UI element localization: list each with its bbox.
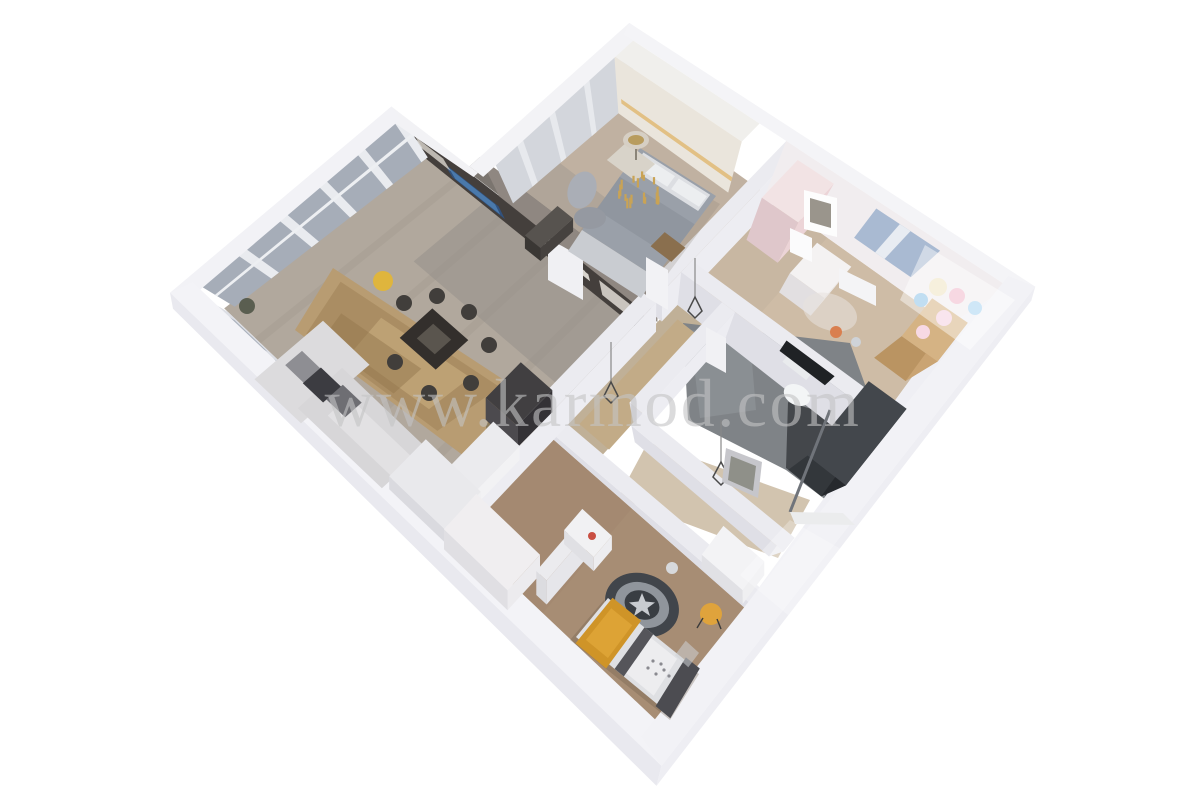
svg-text:www.karmod.com: www.karmod.com bbox=[325, 365, 862, 441]
